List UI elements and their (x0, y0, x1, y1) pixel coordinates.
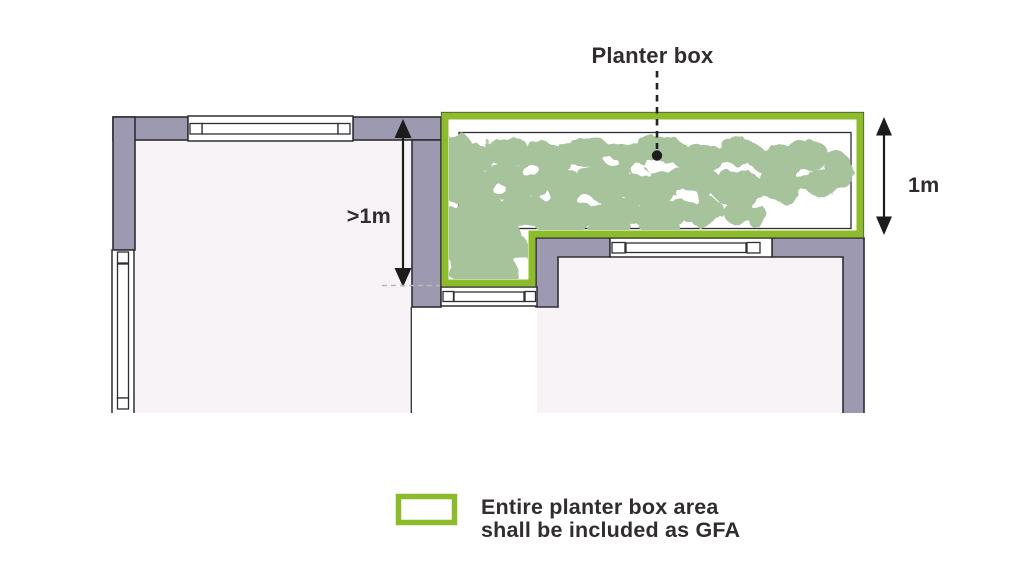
window-under-planter (441, 287, 537, 306)
leader-dot (652, 150, 662, 160)
planter-box-label: Planter box (560, 43, 745, 69)
right-room-interior (537, 257, 843, 420)
dimension-arrow-depth (876, 117, 892, 235)
planter-box-gfa-diagram: Planter box >1m 1m Entire planter box ar… (0, 0, 1015, 577)
legend-text-line-2: shall be included as GFA (481, 519, 740, 542)
middle-wall (412, 140, 441, 307)
legend-green-swatch (399, 497, 455, 523)
offset-dimension-label: >1m (300, 204, 391, 229)
depth-dimension-label: 1m (908, 173, 939, 198)
legend-text-line-1: Entire planter box area (481, 496, 740, 519)
left-wall (113, 117, 135, 250)
legend-text: Entire planter box area shall be include… (481, 496, 740, 542)
window-top (188, 116, 353, 141)
window-left (112, 250, 134, 414)
plan-cut-mask (100, 413, 900, 458)
left-room-interior (135, 140, 411, 418)
window-right-room (610, 238, 772, 257)
floor-plan-drawing (0, 0, 1015, 577)
